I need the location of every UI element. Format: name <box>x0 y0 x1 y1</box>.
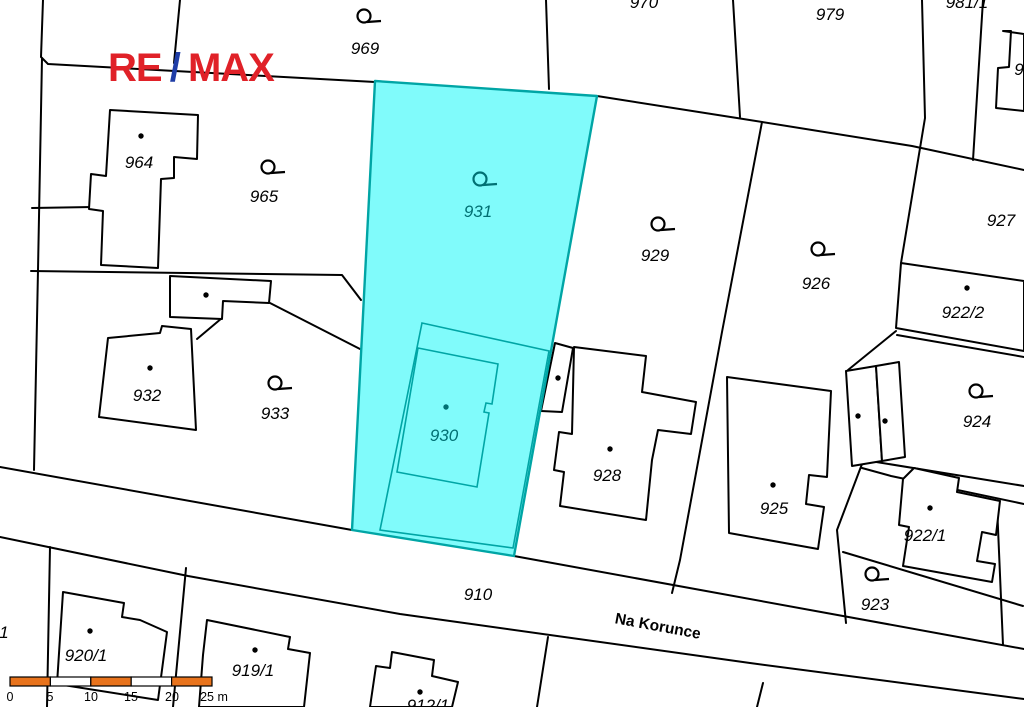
parcel-label-928: 928 <box>593 466 622 485</box>
building-definition-dot <box>927 505 932 510</box>
building-definition-dot <box>770 482 775 487</box>
building-definition-dot <box>882 418 887 423</box>
parcel-label-933: 933 <box>261 404 290 423</box>
scale-bar-segment <box>172 677 212 686</box>
building-definition-dot <box>87 628 92 633</box>
land-use-symbol-tail <box>979 396 993 397</box>
parcel-label-964: 964 <box>125 153 153 172</box>
parcel-label-969: 969 <box>351 39 380 58</box>
remax-logo-max: MAX <box>188 48 274 88</box>
parcel-label-979: 979 <box>816 5 845 24</box>
building-definition-dot <box>417 689 422 694</box>
scale-bar-tick-label: 10 <box>84 690 98 704</box>
building-925 <box>727 377 831 549</box>
parcel-label-1: 1 <box>0 623 9 642</box>
scale-bar-segment <box>91 677 131 686</box>
parcel-label-919-1: 919/1 <box>232 661 275 680</box>
land-use-symbol-tail <box>875 579 889 580</box>
building-definition-dot <box>607 446 612 451</box>
scale-bar-segment <box>50 677 90 686</box>
building-932 <box>99 326 196 430</box>
parcel-label-923: 923 <box>861 595 890 614</box>
parcel-label-920-1: 920/1 <box>65 646 108 665</box>
parcel-label-965: 965 <box>250 187 279 206</box>
parcel-label-912-1: 912/1 <box>407 696 450 707</box>
building-definition-dot <box>147 365 152 370</box>
parcel-label-981-1: 981/1 <box>946 0 989 12</box>
scale-bar-tick-label: 0 <box>7 690 14 704</box>
parcel-label-922-2: 922/2 <box>942 303 985 322</box>
parcel-label-910: 910 <box>464 585 493 604</box>
scale-bar-tick-label: 20 <box>165 690 179 704</box>
land-use-symbol-tail <box>661 229 675 230</box>
parcel-label-929: 929 <box>641 246 670 265</box>
building-small-b <box>876 362 905 461</box>
building-definition-dot <box>443 404 448 409</box>
parcel-label-924: 924 <box>963 412 991 431</box>
land-use-symbol-tail <box>271 172 285 173</box>
scale-bar-tick-label: 15 <box>124 690 138 704</box>
land-use-symbol-tail <box>821 254 835 255</box>
building-definition-dot <box>138 133 143 138</box>
land-use-symbol-tail <box>483 184 497 185</box>
scale-bar-tick-label: 25 m <box>200 690 228 704</box>
land-use-symbol-tail <box>278 388 292 389</box>
building-definition-dot <box>964 285 969 290</box>
building-definition-dot <box>555 375 560 380</box>
building-definition-dot <box>252 647 257 652</box>
cadastral-map-page: 969970979981/19927964965929926922/293293… <box>0 0 1024 707</box>
land-use-symbol-tail <box>367 21 381 22</box>
scale-bar-tick-label: 5 <box>47 690 54 704</box>
parcel-label-931: 931 <box>464 202 492 221</box>
remax-logo: RE / MAX <box>108 48 274 88</box>
remax-logo-slash: / <box>170 48 180 88</box>
scale-bar-segment <box>131 677 171 686</box>
parcel-label-970: 970 <box>630 0 659 12</box>
scale-bar-segment <box>10 677 50 686</box>
parcel-label-9: 9 <box>1014 60 1024 79</box>
cadastral-map: 969970979981/19927964965929926922/293293… <box>0 0 1024 707</box>
building-definition-dot <box>203 292 208 297</box>
parcel-boundary <box>32 207 93 208</box>
parcel-label-930: 930 <box>430 426 459 445</box>
parcel-label-932: 932 <box>133 386 162 405</box>
remax-logo-re: RE <box>108 48 162 88</box>
parcel-label-922-1: 922/1 <box>904 526 947 545</box>
parcel-label-926: 926 <box>802 274 831 293</box>
parcel-label-927: 927 <box>987 211 1016 230</box>
building-definition-dot <box>855 413 860 418</box>
parcel-label-925: 925 <box>760 499 789 518</box>
